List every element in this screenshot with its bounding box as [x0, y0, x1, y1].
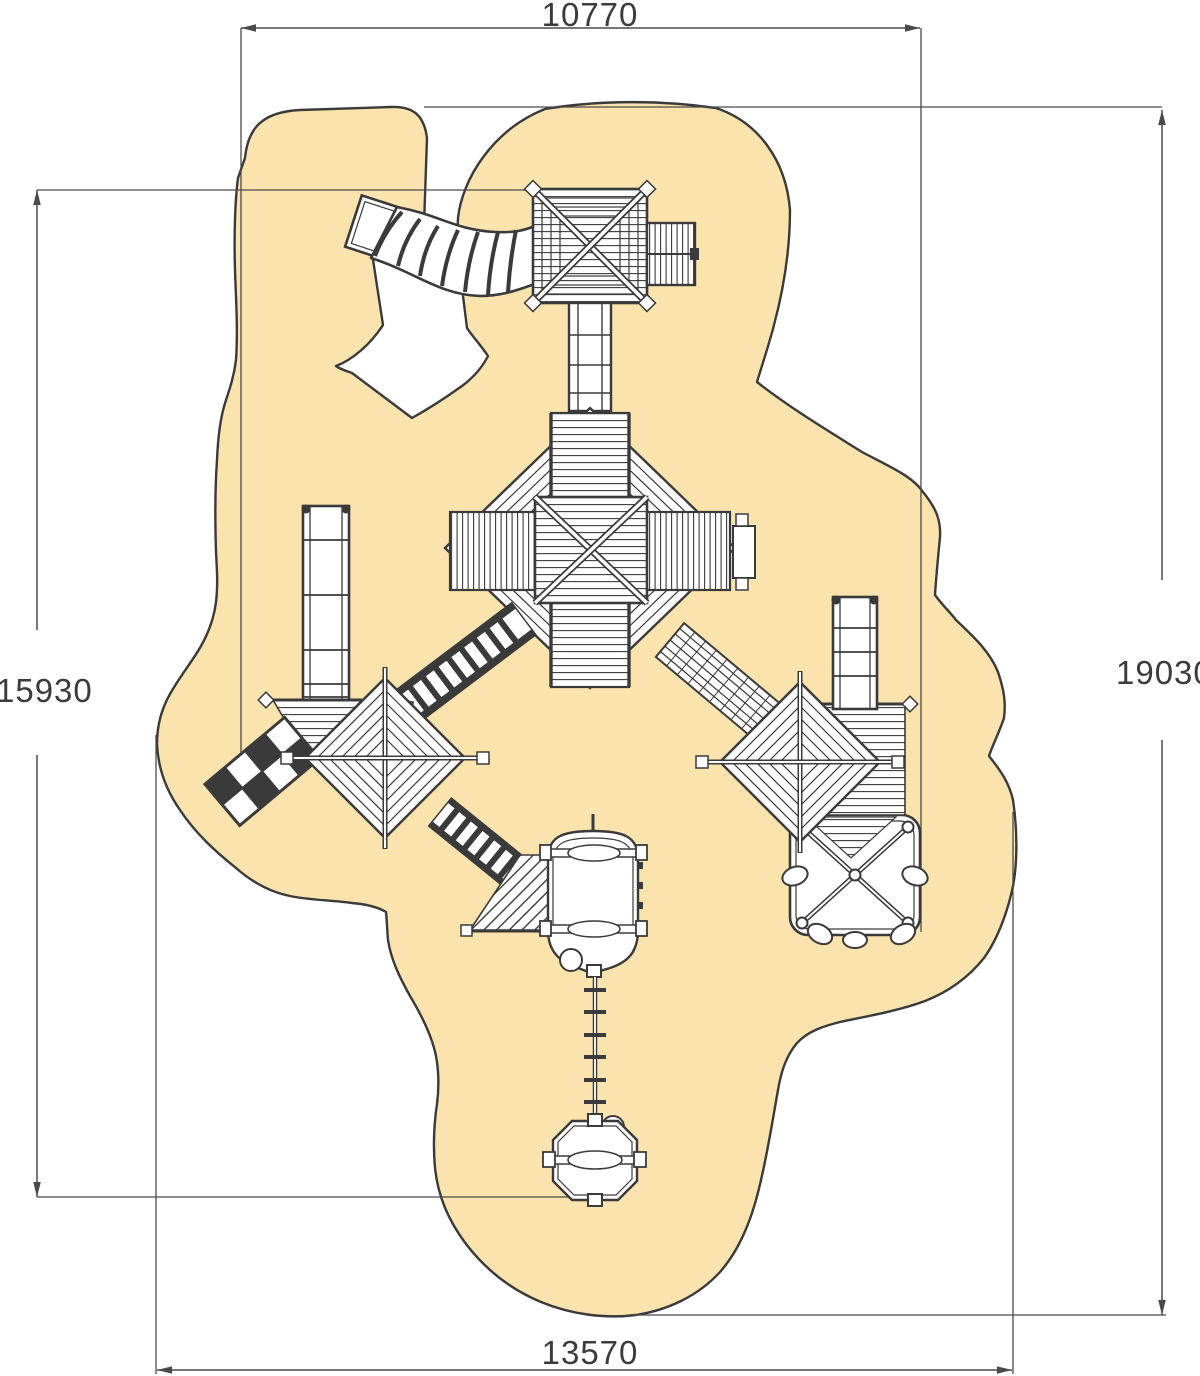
playground-plan-svg [0, 0, 1200, 1376]
top-square-tower [525, 181, 656, 312]
dimension-label-left: 15930 [0, 672, 84, 710]
plan-drawing-canvas: 10770 15930 19030 13570 [0, 0, 1200, 1376]
north-bridge [569, 303, 611, 411]
west-ladder [302, 505, 351, 701]
dimension-label-bottom: 13570 [495, 1334, 685, 1372]
dimension-label-right: 19030 [1116, 654, 1200, 692]
dimension-label-top: 10770 [490, 0, 690, 34]
basket-pod [540, 814, 647, 977]
east-ladder [832, 596, 879, 710]
climbing-panel [647, 223, 699, 285]
